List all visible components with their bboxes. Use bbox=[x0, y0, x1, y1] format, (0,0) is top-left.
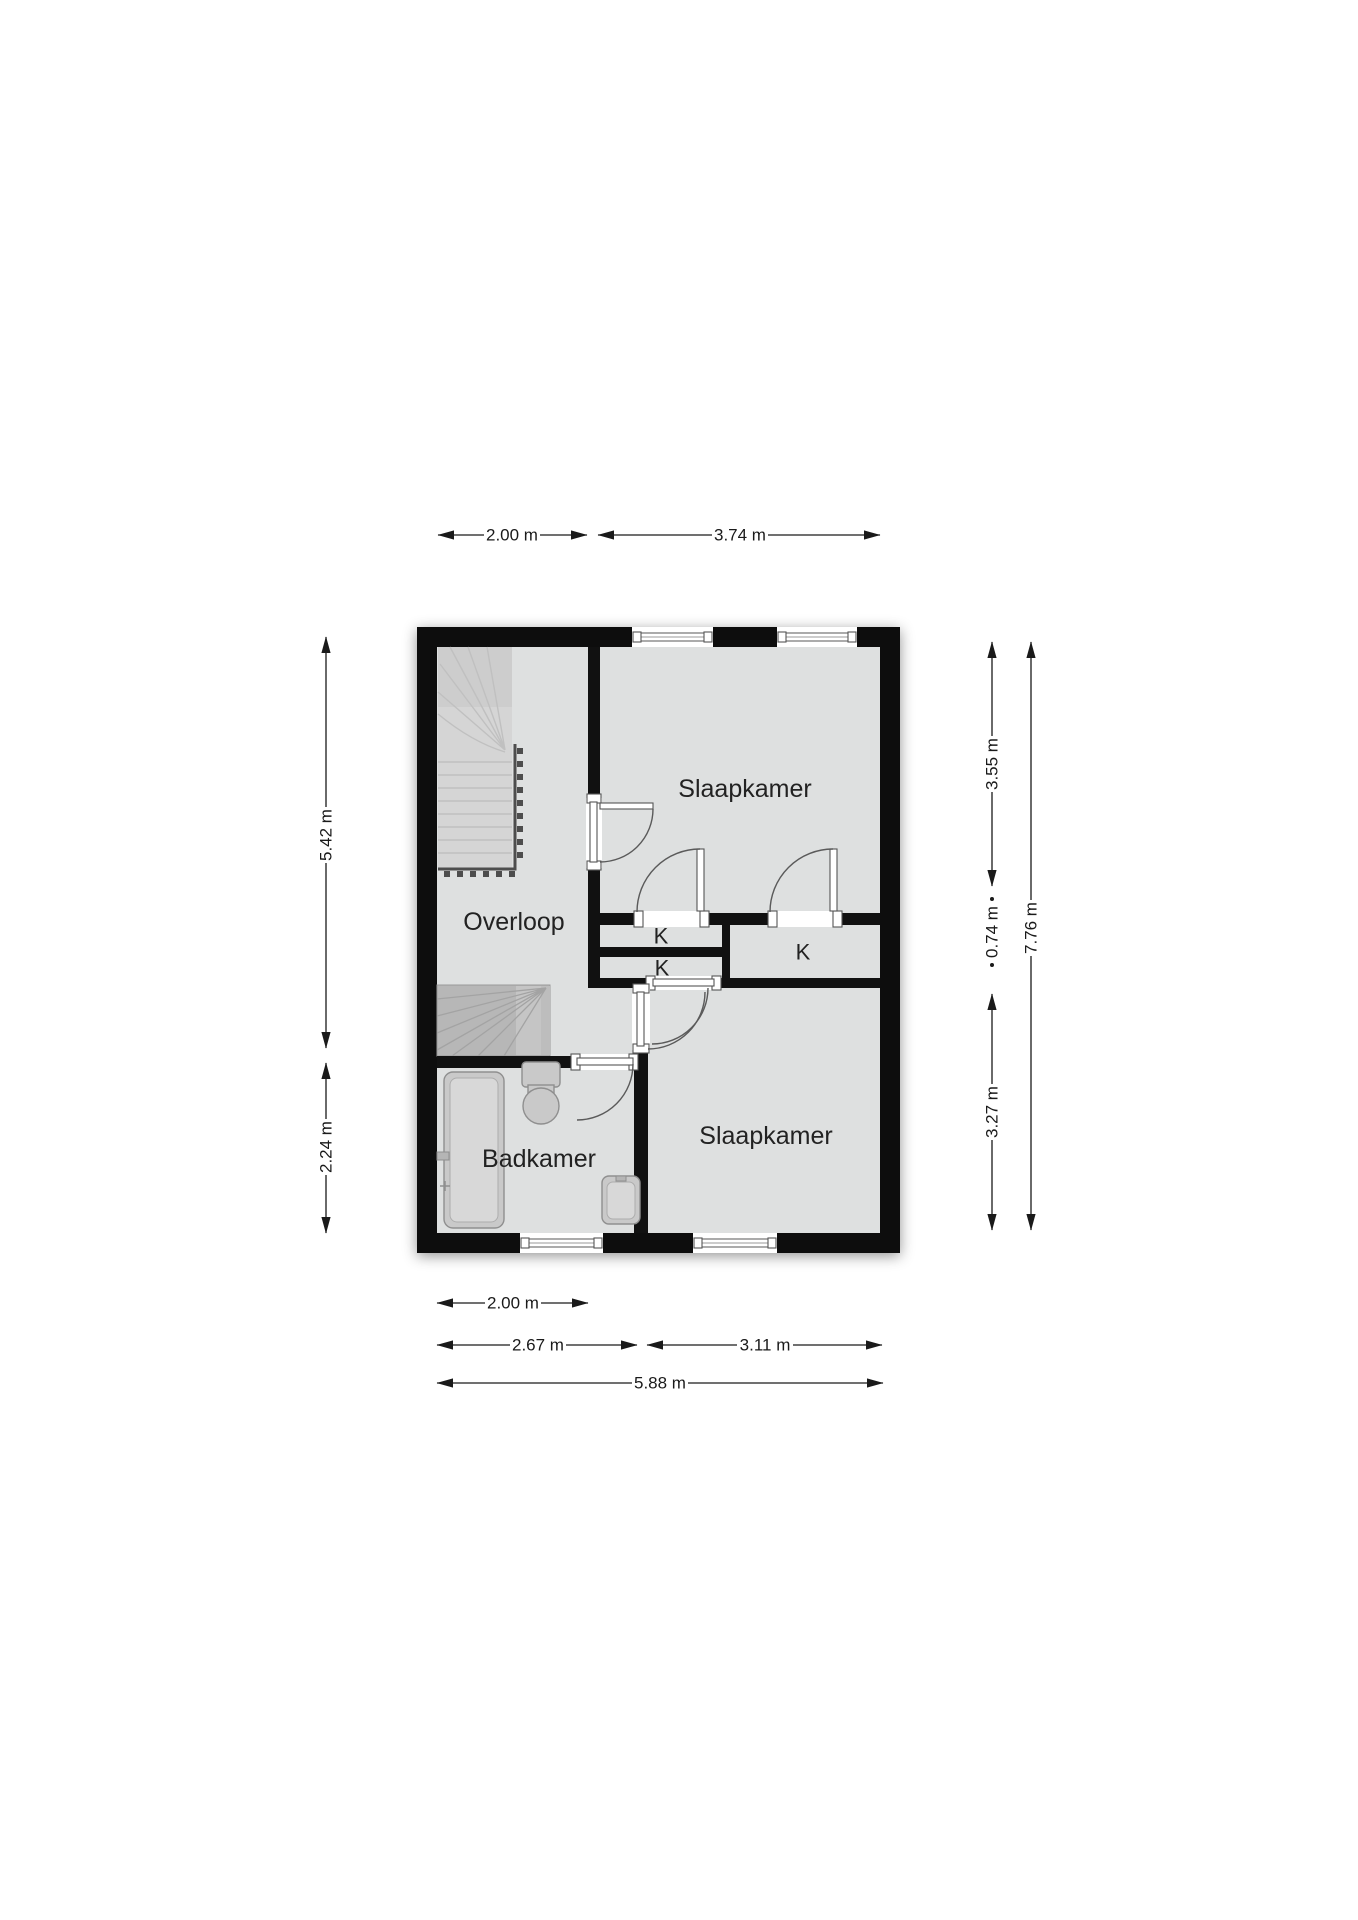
room-label-closet-2: K bbox=[655, 956, 670, 981]
window bbox=[777, 627, 857, 647]
room-label-closet-3: K bbox=[796, 940, 811, 965]
svg-text:3.27 m: 3.27 m bbox=[983, 1086, 1002, 1138]
dimension-left-upper: 5.42 m bbox=[317, 637, 336, 1048]
svg-text:0.74 m: 0.74 m bbox=[983, 906, 1002, 958]
dimension-right-upper: 3.55 m bbox=[983, 642, 1002, 886]
dimension-right-lower: 3.27 m bbox=[983, 994, 1002, 1230]
dimension-right-overall: 7.76 m bbox=[1022, 642, 1041, 1230]
dimension-left-lower: 2.24 m bbox=[317, 1063, 336, 1233]
svg-text:3.74 m: 3.74 m bbox=[714, 526, 766, 545]
window bbox=[693, 1233, 777, 1253]
page: { "rooms": { "bedroom_top": "Slaapkamer"… bbox=[0, 0, 1358, 1920]
svg-text:2.00 m: 2.00 m bbox=[486, 526, 538, 545]
svg-text:3.11 m: 3.11 m bbox=[740, 1336, 791, 1355]
svg-text:2.00 m: 2.00 m bbox=[487, 1294, 539, 1313]
dimension-top-left: 2.00 m bbox=[438, 526, 587, 545]
dimension-bottom-row1: 2.00 m bbox=[437, 1294, 588, 1313]
stairs-up bbox=[437, 985, 550, 1056]
svg-text:2.67 m: 2.67 m bbox=[512, 1336, 564, 1355]
dimension-top-right: 3.74 m bbox=[598, 526, 880, 545]
room-label-bedroom-top: Slaapkamer bbox=[678, 775, 811, 803]
svg-text:5.42 m: 5.42 m bbox=[317, 809, 336, 861]
room-label-closet-1: K bbox=[654, 924, 669, 949]
room-label-bedroom-bottom: Slaapkamer bbox=[699, 1122, 832, 1150]
sink bbox=[602, 1176, 640, 1224]
svg-text:3.55 m: 3.55 m bbox=[983, 738, 1002, 790]
dimension-bottom-row2-left: 2.67 m bbox=[437, 1336, 637, 1355]
room-label-landing: Overloop bbox=[463, 908, 564, 936]
dimension-right-middle: 0.74 m bbox=[983, 897, 1002, 967]
window bbox=[520, 1233, 603, 1253]
svg-text:5.88 m: 5.88 m bbox=[634, 1374, 686, 1393]
toilet bbox=[522, 1062, 560, 1124]
svg-text:2.24 m: 2.24 m bbox=[317, 1121, 336, 1173]
dimension-bottom-row2-right: 3.11 m bbox=[647, 1336, 882, 1355]
stairs-down bbox=[438, 647, 512, 868]
svg-text:7.76 m: 7.76 m bbox=[1022, 902, 1041, 954]
floor-plan: Slaapkamer Overloop K K K Badkamer Slaap… bbox=[0, 0, 1358, 1920]
dimension-bottom-row3: 5.88 m bbox=[437, 1374, 883, 1393]
window bbox=[632, 627, 713, 647]
room-label-bathroom: Badkamer bbox=[482, 1145, 596, 1173]
